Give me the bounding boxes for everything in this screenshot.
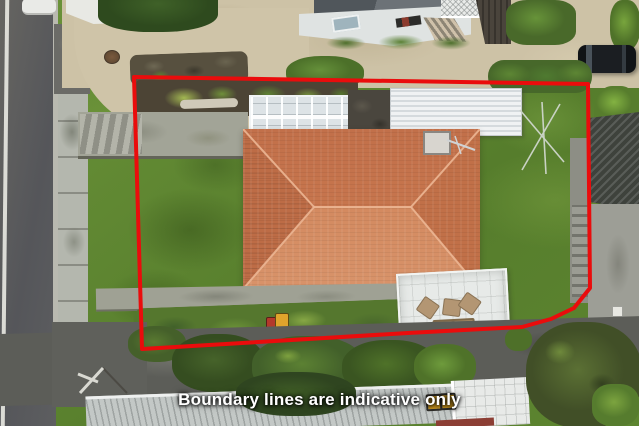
bush-ne-corner [610,0,639,50]
small-white-object [612,306,623,317]
tv-antenna [445,134,485,158]
ottoman-cushion [442,298,462,317]
neighbor-roof-east [590,112,639,210]
tree-nw [98,0,218,32]
bush-by-deck [505,328,532,351]
aerial-property-photo: Boundary lines are indicative only [0,0,639,426]
rotary-clothesline [512,98,574,178]
hedge-top-center [506,0,576,45]
manhole-cover [104,50,120,64]
parked-car-white [22,0,56,15]
ottoman-cushion [416,296,440,320]
side-steps [572,205,588,297]
ottoman-cushion [457,292,481,316]
boundary-disclaimer: Boundary lines are indicative only [0,390,639,410]
entry-steps [80,114,142,154]
neighbor-shrub-row [316,35,478,50]
